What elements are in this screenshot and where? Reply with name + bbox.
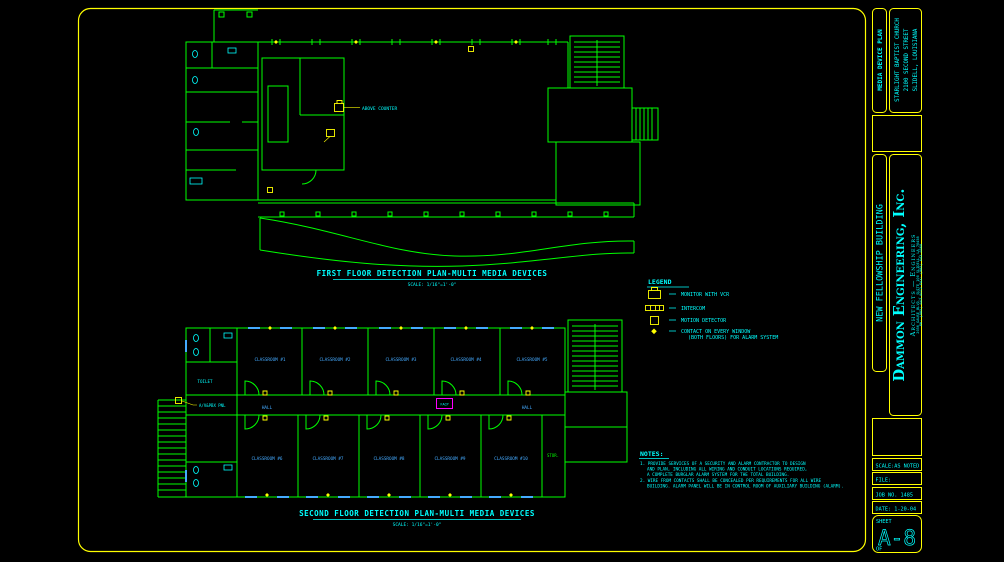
legend-item-label2: (BOTH FLOORS) FOR ALARM SYSTEM	[688, 335, 778, 341]
classroom-doors	[245, 381, 522, 429]
titleblock-empty-box	[873, 116, 922, 152]
room-label: CLASSROOM #6	[251, 456, 282, 462]
note-line: A COMPLETE BURGLAR ALARM SYSTEM FOR THE …	[647, 472, 789, 478]
second-floor-plan-title: SECOND FLOOR DETECTION PLAN-MULTI MEDIA …	[299, 509, 535, 518]
firm-address-line2: PH: (985) 643-0072 FAX: (985) 643-0560	[919, 244, 923, 326]
room-label: CLASSROOM #8	[373, 456, 404, 462]
toilet-label: TOILET	[197, 379, 213, 384]
first-floor-plan	[186, 10, 658, 266]
note-line: BUILDING. ALARM PANEL WILL BE IN CONTROL…	[647, 484, 844, 490]
file-value: FILE:	[876, 478, 892, 484]
notes-title: NOTES:	[640, 450, 663, 458]
room-label: CLASSROOM #1	[254, 357, 285, 363]
platform-room-walls	[262, 58, 344, 170]
title-block: MEDIA DEVICE PLAN STARLIGHT BAPTIST CHUR…	[873, 9, 924, 553]
sheet-label: SHEET	[876, 519, 892, 525]
cad-drawing-sheet: ABOVE COUNTER FACP CLASSROOM #1 CLAS	[0, 0, 1004, 562]
monitor-vcr-icon	[649, 288, 661, 299]
room-label: CLASSROOM #9	[434, 456, 465, 462]
monitor-vcr-symbol	[335, 101, 361, 112]
storage-label: STOR.	[547, 453, 559, 458]
monitor-vcr-symbol	[324, 130, 335, 143]
first-floor-walls	[186, 10, 258, 200]
hall-label: HALL	[262, 405, 273, 411]
note-line: 2. WIRE FROM CONTACTS SHALL BE CONCEALED…	[640, 478, 821, 484]
project-name: STARLIGHT BAPTIST CHURCH	[895, 18, 901, 102]
second-floor-stair-tower	[568, 320, 622, 392]
fire-alarm-panel-label: FACP	[440, 403, 448, 407]
of-label: OF	[876, 547, 882, 553]
media-device-plan-label: MEDIA DEVICE PLAN	[877, 29, 884, 91]
motion-detector-symbol	[268, 188, 273, 193]
left-exterior-stair	[158, 400, 186, 497]
motion-detector-symbol	[469, 47, 474, 52]
second-floor-plan	[158, 320, 627, 497]
second-floor-room-labels: CLASSROOM #1 CLASSROOM #2 CLASSROOM #3 C…	[251, 357, 547, 462]
note-line: 1. PROVIDE SERVICES OF A SECURITY AND AL…	[640, 461, 806, 467]
intercom-icon	[646, 306, 664, 311]
legend-item-label: MONITOR WITH VCR	[681, 292, 730, 298]
date-value: DATE: 1-20-04	[876, 507, 917, 513]
window-contact-symbols	[265, 326, 534, 497]
second-floor-walls	[186, 328, 565, 497]
second-floor-devices	[176, 326, 535, 497]
room-label: CLASSROOM #7	[312, 456, 343, 462]
room-label: CLASSROOM #2	[319, 357, 350, 363]
legend-item-label: MOTION DETECTOR	[681, 318, 727, 324]
note-line: AND PLAN, INCLUDING ALL WIRING AND CONDU…	[647, 467, 807, 473]
right-exterior-steps	[632, 108, 658, 140]
job-number: JOB NO. 1485	[876, 493, 913, 499]
curved-walkway	[260, 218, 634, 266]
floor-plans-canvas: ABOVE COUNTER FACP CLASSROOM #1 CLAS	[0, 0, 1004, 562]
room-label: CLASSROOM #5	[516, 357, 547, 363]
legend-title: LEGEND	[648, 278, 672, 286]
building-name: NEW FELLOWSHIP BUILDING	[876, 204, 886, 322]
plan-titles: FIRST FLOOR DETECTION PLAN-MULTI MEDIA D…	[299, 269, 547, 528]
room-label: CLASSROOM #3	[385, 357, 416, 363]
room-label: CLASSROOM #4	[450, 357, 481, 363]
first-floor-plan-title: FIRST FLOOR DETECTION PLAN-MULTI MEDIA D…	[317, 269, 548, 278]
project-city: SLIDELL, LOUISIANA	[913, 28, 919, 91]
sheet-number: A-8	[878, 526, 916, 550]
motion-detector-icon	[651, 317, 659, 325]
av-pbx-label: A/V&PBX PNL	[199, 403, 226, 408]
second-floor-fixtures	[194, 333, 233, 487]
above-counter-label: ABOVE COUNTER	[362, 106, 398, 112]
legend: LEGEND MONITOR WITH VCR INTERCOM MOTION …	[646, 278, 779, 341]
legend-item-label: INTERCOM	[681, 306, 705, 312]
scale-value: SCALE:AS NOTED	[876, 464, 920, 470]
hall-label: HALL	[522, 405, 533, 411]
room-label: CLASSROOM #10	[494, 456, 528, 462]
second-floor-plan-scale: SCALE: 1/16"=1'-0"	[393, 522, 442, 528]
second-floor-windows	[186, 328, 554, 497]
firm-name: Dammon Engineering, Inc.	[891, 189, 908, 382]
titleblock-empty-box	[873, 419, 922, 456]
first-floor-plan-scale: SCALE: 1/16"=1'-0"	[408, 282, 457, 288]
notes: NOTES: 1. PROVIDE SERVICES OF A SECURITY…	[639, 450, 844, 490]
project-street: 2100 SECOND STREET	[904, 28, 910, 91]
window-contact-icon	[651, 329, 657, 335]
first-floor-stair-tower	[570, 36, 624, 88]
